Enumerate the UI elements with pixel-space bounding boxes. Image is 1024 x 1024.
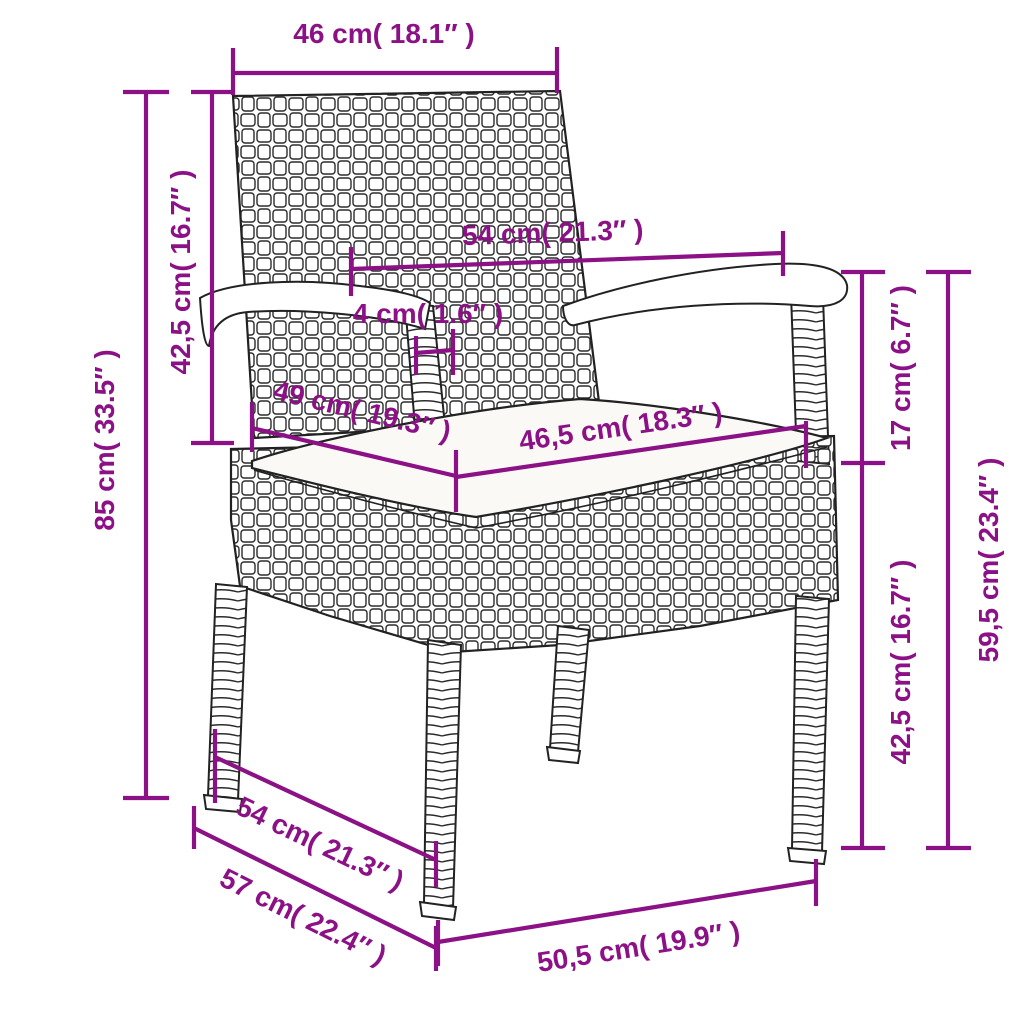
dim-label-backrest-height: 42,5 cm( 16.7″ ) (165, 170, 196, 375)
chair-right-leg (792, 596, 829, 852)
dim-label-backrest-top-width: 46 cm( 18.1″ ) (293, 18, 475, 49)
dim-label-armrest-height: 59,5 cm( 23.4″ ) (973, 458, 1004, 663)
dim-label-total-height: 85 cm( 33.5″ ) (89, 349, 120, 531)
dim-label-base-front-width: 50,5 cm( 19.9″ ) (535, 915, 742, 978)
dim-label-armrest-span: 54 cm( 21.3″ ) (461, 214, 643, 251)
dim-line-total-height (123, 92, 169, 798)
dim-label-seat-height: 42,5 cm( 16.7″ ) (885, 560, 916, 765)
dim-line-backrest-top-width (233, 47, 557, 95)
dim-line-armrest-height (926, 272, 971, 848)
dim-label-armrest-thickness: 4 cm( 1.6″ ) (353, 298, 503, 329)
chair-front-leg (424, 640, 461, 908)
chair-middle-back-foot (547, 747, 580, 763)
dim-label-arm-above-seat: 17 cm( 6.7″ ) (885, 285, 916, 451)
dim-line-arm-above-seat (841, 272, 885, 463)
dim-line-backrest-height (191, 92, 234, 443)
diagram-canvas: 46 cm( 18.1″ ) 42,5 cm( 16.7″ ) 85 cm( 3… (0, 0, 1024, 1024)
chair-dimension-diagram: 46 cm( 18.1″ ) 42,5 cm( 16.7″ ) 85 cm( 3… (0, 0, 1024, 1024)
chair-middle-back-leg (550, 626, 589, 752)
dim-line-seat-height (841, 463, 885, 848)
chair-right-foot (788, 848, 826, 864)
